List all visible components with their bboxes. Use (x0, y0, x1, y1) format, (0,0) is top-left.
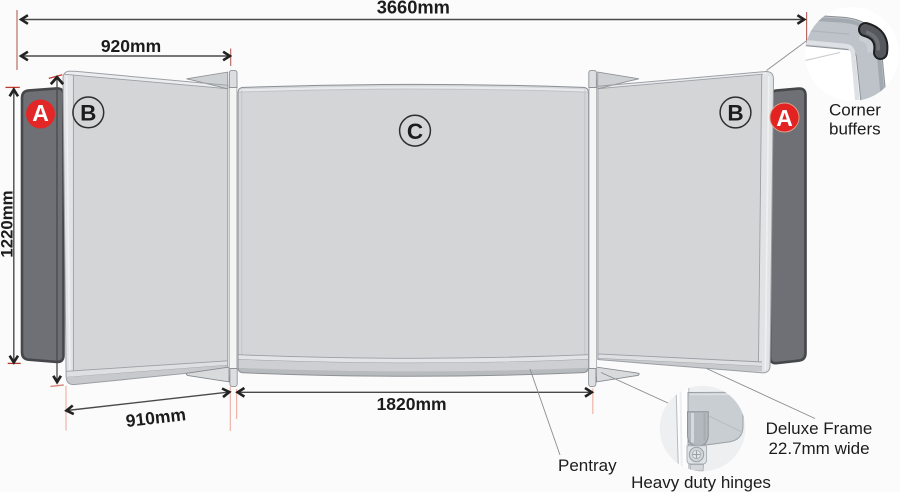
svg-text:B: B (727, 101, 743, 126)
svg-text:1820mm: 1820mm (377, 394, 447, 414)
svg-text:920mm: 920mm (101, 36, 161, 56)
svg-text:A: A (32, 100, 49, 126)
svg-text:3660mm: 3660mm (377, 0, 450, 18)
svg-text:C: C (407, 119, 423, 144)
svg-text:Corner: Corner (829, 101, 881, 120)
svg-text:Heavy duty hinges: Heavy duty hinges (631, 473, 771, 492)
svg-text:Pentray: Pentray (558, 456, 617, 475)
svg-text:A: A (776, 105, 793, 131)
svg-text:buffers: buffers (829, 120, 881, 139)
svg-text:1220mm: 1220mm (0, 190, 16, 257)
svg-text:B: B (80, 101, 96, 126)
svg-text:Deluxe Frame: Deluxe Frame (766, 419, 873, 438)
svg-text:22.7mm wide: 22.7mm wide (768, 439, 869, 458)
